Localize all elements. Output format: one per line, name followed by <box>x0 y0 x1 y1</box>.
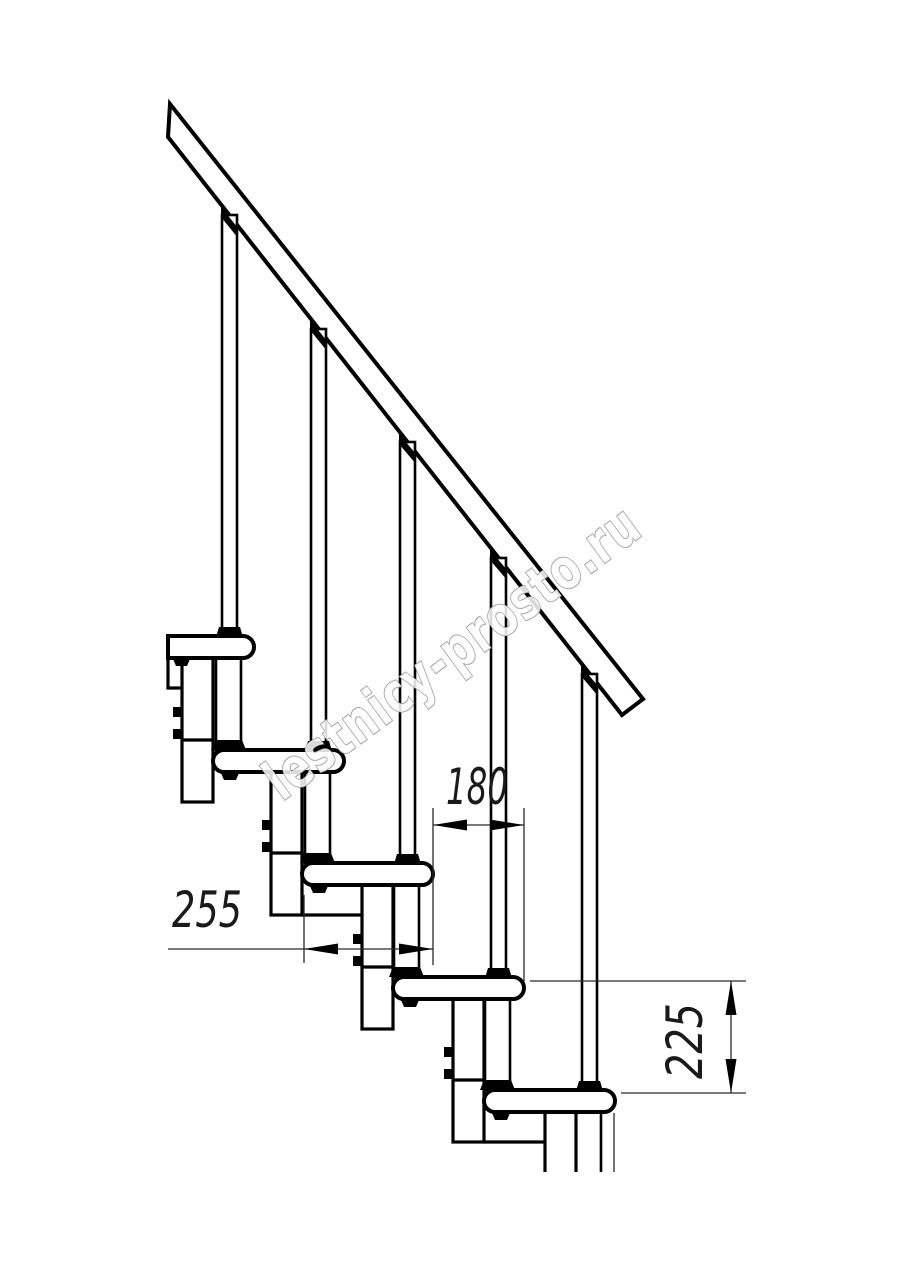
dimension-step-run: 180 <box>433 758 524 981</box>
dimension-label-180: 180 <box>446 758 508 816</box>
tread <box>168 636 254 658</box>
bolt <box>353 956 362 966</box>
support-tube <box>485 997 510 1090</box>
support-tube-cut <box>576 1110 601 1172</box>
under-tread-nut <box>221 773 239 780</box>
module-column <box>362 884 393 1029</box>
tread <box>302 863 433 885</box>
staircase-technical-drawing: 255 180 225 lestnicy-prosto.ru <box>0 0 914 1280</box>
baluster <box>311 329 326 754</box>
arrowhead-down <box>726 1059 737 1093</box>
baluster <box>582 674 597 1094</box>
bolt <box>353 934 362 944</box>
under-tread-nut <box>492 1113 510 1120</box>
dimension-step-rise: 225 <box>530 981 746 1093</box>
bolt <box>444 1069 453 1079</box>
under-tread-nut <box>310 886 328 893</box>
bolt <box>173 729 182 739</box>
bolt <box>444 1047 453 1057</box>
tread <box>484 1090 615 1112</box>
bolt <box>173 707 182 717</box>
baluster <box>222 215 237 640</box>
module-column-cut <box>545 1112 576 1172</box>
baluster-base-collar <box>485 968 512 978</box>
tube-flare-foot <box>300 853 335 863</box>
tube-flare-foot <box>480 1080 515 1090</box>
support-tube <box>394 883 419 977</box>
baluster-base-collar <box>394 854 421 864</box>
support-tube <box>216 656 241 750</box>
tube-flare-foot <box>211 740 246 750</box>
arrowhead-left <box>433 820 467 831</box>
dimension-label-255: 255 <box>172 881 242 939</box>
dimension-label-225: 225 <box>656 1003 714 1079</box>
arrowhead-up <box>726 981 737 1015</box>
staircase-drawing-page: 255 180 225 lestnicy-prosto.ru <box>0 0 914 1280</box>
tread <box>393 977 524 999</box>
baluster-base-collar <box>216 627 243 637</box>
tube-flare-foot <box>389 967 424 977</box>
bolt <box>262 820 271 830</box>
module-column <box>182 657 213 802</box>
module-column <box>453 998 484 1142</box>
bolt <box>262 842 271 852</box>
arrowhead-left <box>304 944 338 955</box>
under-tread-nut <box>401 1000 419 1007</box>
baluster-base-collar <box>576 1081 603 1091</box>
